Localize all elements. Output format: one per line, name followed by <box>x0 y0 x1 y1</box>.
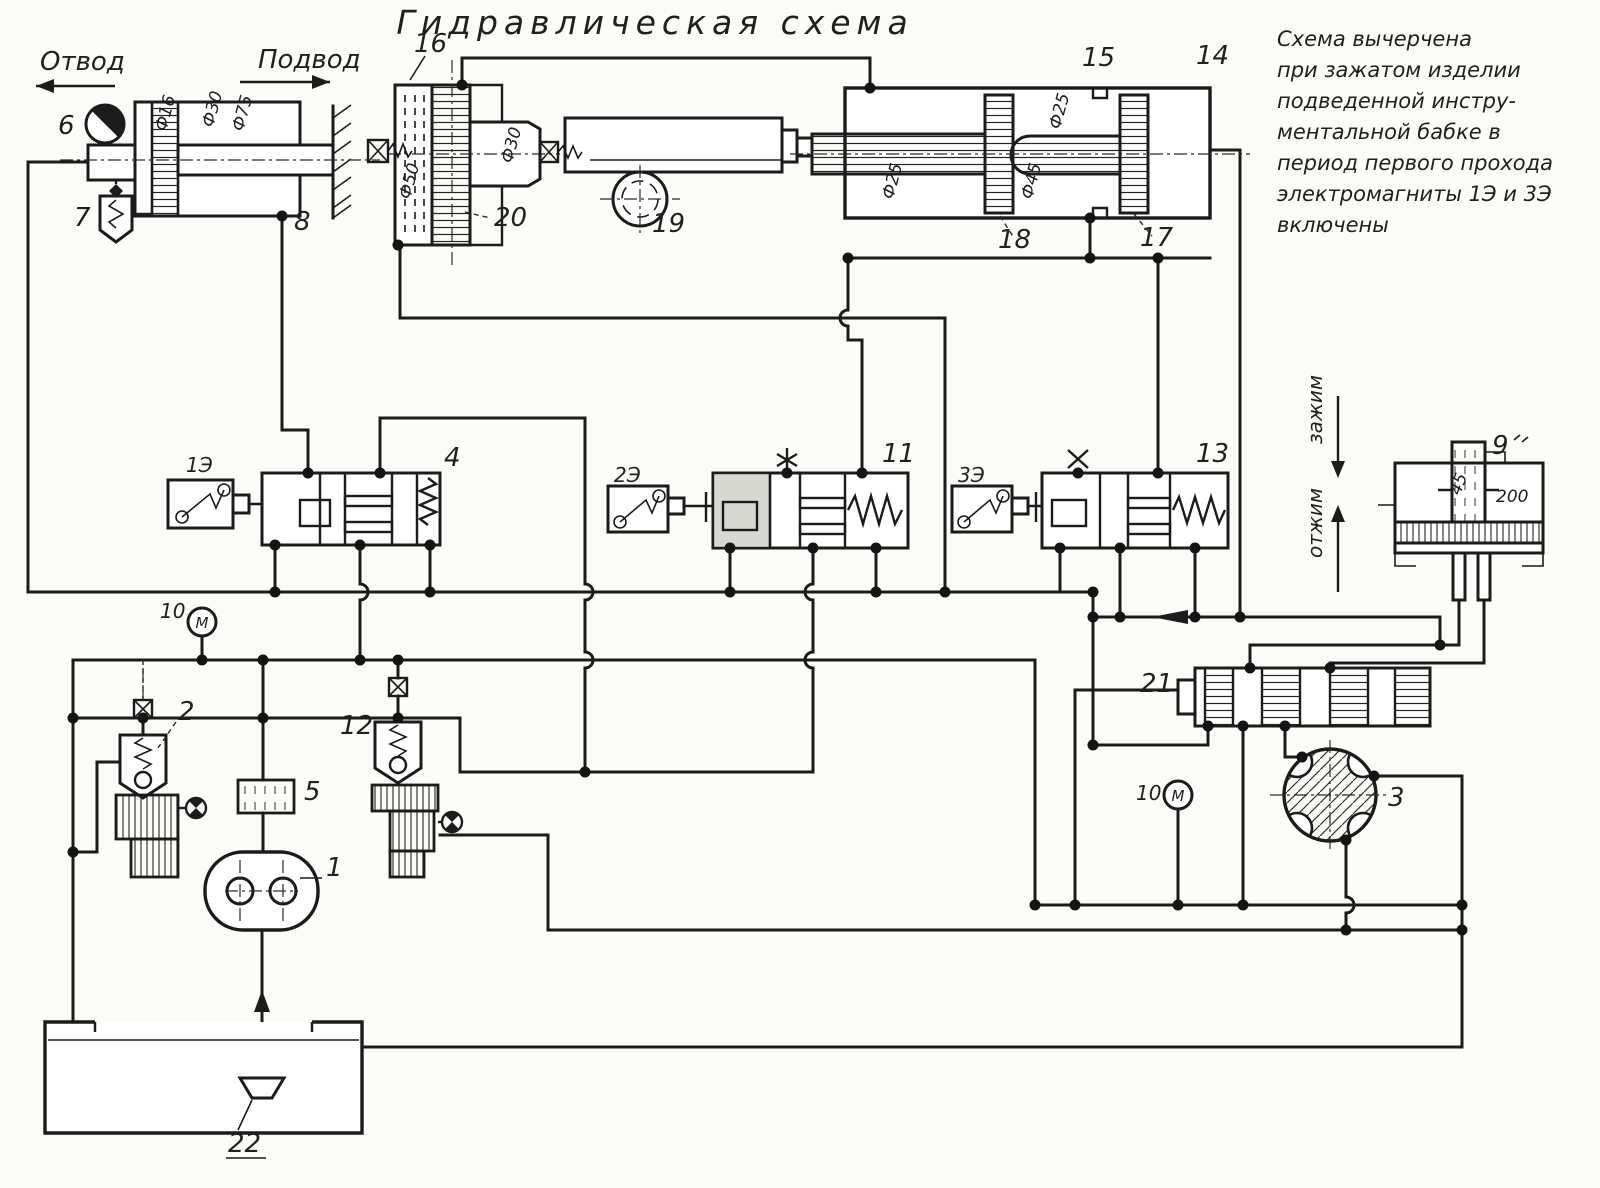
otvod-arrow-icon <box>36 79 54 93</box>
relief-2-block-lower <box>131 839 178 877</box>
solenoid-2e-label: 2Э <box>614 463 641 487</box>
label-3: 3 <box>1388 783 1405 813</box>
relief-12-block <box>372 785 438 811</box>
label-6: 6 <box>58 111 75 141</box>
label-17: 17 <box>1140 223 1174 253</box>
note-line: подведенной инстру- <box>1277 89 1516 113</box>
suction-arrow-icon <box>254 990 270 1012</box>
flow-label-podvod: Подвод <box>258 45 361 75</box>
filter-5-group: 5 <box>238 777 321 813</box>
dim-200: 200 <box>1496 487 1528 507</box>
note-line: включены <box>1277 213 1389 237</box>
gauge-10a-group: 10 М <box>160 599 216 636</box>
label-11: 11 <box>882 439 915 469</box>
label-5: 5 <box>304 777 321 807</box>
zazhim-arrow-icon <box>1331 461 1345 478</box>
flow-arrow-left <box>1152 610 1188 624</box>
note-block: Схема вычерчена при зажатом изделии подв… <box>1277 27 1553 237</box>
label-20: 20 <box>494 203 527 233</box>
valve-21-group: 21 <box>1140 668 1430 726</box>
solenoid-3e-icon <box>952 486 1012 532</box>
check-valve-7-icon <box>100 196 132 242</box>
label-4: 4 <box>444 443 461 473</box>
left-cylinder-group: Отвод Подвод 6 7 8 Ф16 Ф30 Ф75 <box>36 45 380 242</box>
label-otzhim: отжим <box>1303 488 1327 558</box>
note-line: электромагниты 1Э и 3Э <box>1277 182 1552 206</box>
label-14: 14 <box>1196 41 1229 71</box>
label-16: 16 <box>414 29 447 59</box>
solenoid-plunger <box>233 495 249 513</box>
tool-tip <box>797 138 812 156</box>
valve-21-end-cap <box>1178 680 1195 714</box>
solenoid-2e-icon <box>608 486 668 532</box>
valve-11-shaded-zone <box>713 473 770 548</box>
right-cylinder-group: 15 14 18 17 Ф25 Ф45 Ф25 <box>790 41 1250 255</box>
relief-12-block-mid <box>390 811 434 851</box>
label-22: 22 <box>228 1129 261 1159</box>
clamp-lower-rod <box>1453 553 1465 600</box>
solenoid-plunger <box>668 498 684 514</box>
label-15: 15 <box>1082 43 1115 73</box>
note-line: Схема вычерчена <box>1277 27 1472 51</box>
valve-13-group: 3Э 13 <box>952 439 1229 548</box>
relief-valve-12-group: 12 <box>340 678 462 877</box>
otzhim-arrow-icon <box>1331 505 1345 522</box>
podvod-arrow-icon <box>312 75 330 89</box>
rod-end-block <box>88 145 135 180</box>
tool-flange <box>782 130 797 162</box>
note-line: при зажатом изделии <box>1277 58 1521 82</box>
label-10a: 10 <box>160 599 185 623</box>
label-13: 13 <box>1196 439 1229 469</box>
valve-4-group: 1Э 4 <box>168 443 461 545</box>
tank-outline <box>45 1022 362 1133</box>
solenoid-3e-label: 3Э <box>958 463 985 487</box>
label-9: 9 <box>1492 431 1509 461</box>
flow-label-otvod: Отвод <box>40 47 125 77</box>
clamp-piston-band <box>1395 522 1543 543</box>
label-zazhim: зажим <box>1303 375 1327 444</box>
note-line: период первого прохода <box>1277 151 1553 175</box>
pump-1-group: 1 <box>205 852 343 930</box>
hydraulic-schematic: Гидравлическая схема Схема вычерчена при… <box>0 0 1600 1188</box>
valve-11-group: 2Э 11 <box>608 439 915 548</box>
filter-5-icon <box>238 780 294 813</box>
clamp-cylinder-9-group: зажим отжим 9 45 200 <box>1303 375 1543 600</box>
clamp-lower-rod <box>1478 553 1490 600</box>
valve-4-body <box>262 473 440 545</box>
label-10b: 10 <box>1136 781 1161 805</box>
gauge-letter: М <box>196 614 209 632</box>
cylinder-16-group: 16 20 Ф50 Ф30 <box>368 29 560 268</box>
tool-19-group: 19 <box>540 118 812 239</box>
solenoid-1e-label: 1Э <box>186 453 213 477</box>
label-12: 12 <box>340 711 373 741</box>
label-1: 1 <box>326 853 343 883</box>
piston-20 <box>432 85 470 245</box>
label-18: 18 <box>998 225 1031 255</box>
relief-2-block <box>116 795 178 839</box>
hydraulic-schematic-page: Гидравлическая схема Схема вычерчена при… <box>0 0 1600 1188</box>
solenoid-plunger <box>1012 498 1028 514</box>
note-line: ментальной бабке в <box>1277 120 1501 144</box>
gauge-10b-group: 10 М <box>1136 781 1192 809</box>
label-7: 7 <box>74 203 91 233</box>
label-21: 21 <box>1140 669 1173 699</box>
tool-bar <box>565 118 782 172</box>
x-port-icon <box>1068 450 1088 468</box>
gauge-letter: М <box>1172 787 1185 805</box>
tank-group: 22 <box>45 1022 362 1159</box>
label-19: 19 <box>652 209 685 239</box>
label-8: 8 <box>294 207 311 237</box>
diagram-title: Гидравлическая схема <box>396 3 913 42</box>
label-2: 2 <box>178 697 195 727</box>
relief-valve-2-group: 2 <box>116 668 206 877</box>
relief-12-block-lower <box>390 851 424 877</box>
